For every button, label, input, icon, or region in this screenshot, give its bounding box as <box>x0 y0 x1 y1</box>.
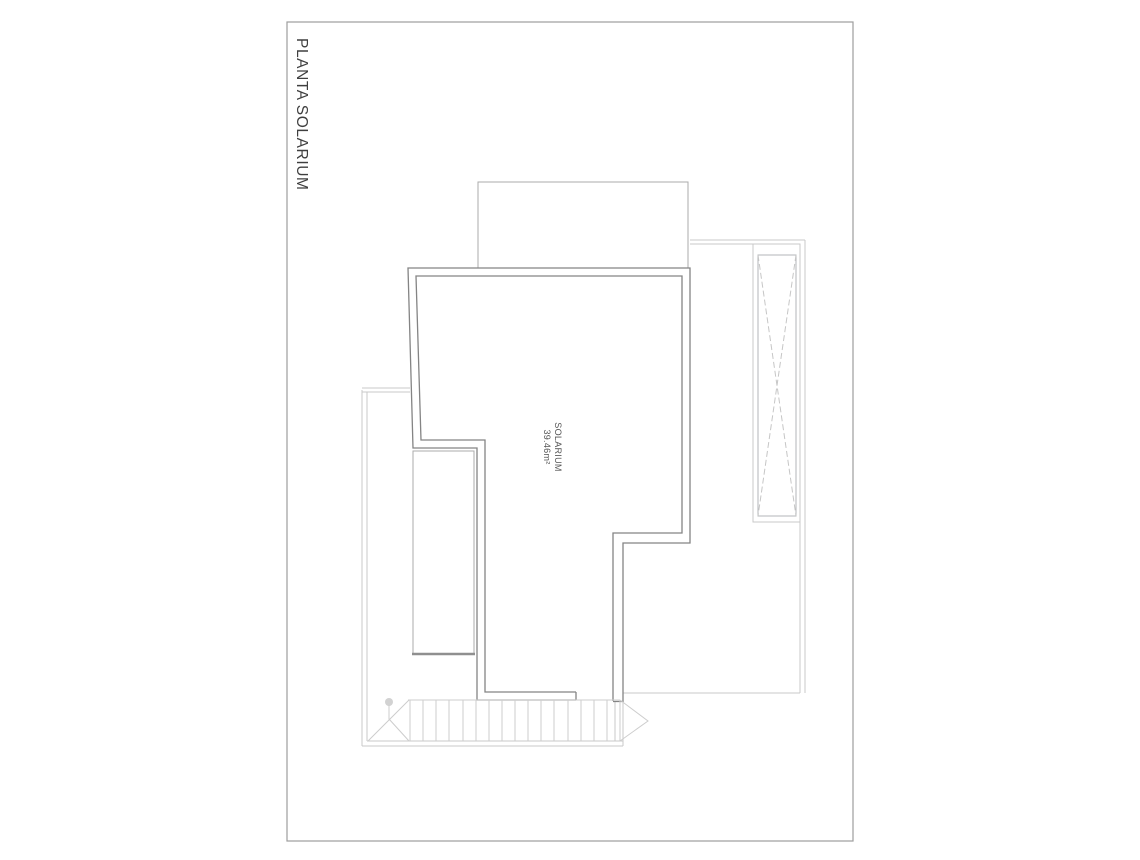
plan-title: PLANTA SOLARIUM <box>293 38 310 191</box>
room-area-label: 39.46m² <box>542 429 552 464</box>
room-label: SOLARIUM 39.46m² <box>542 422 563 471</box>
page-canvas: PLANTA SOLARIUM <box>0 0 1140 860</box>
stair-start-marker <box>385 698 393 706</box>
room-name-label: SOLARIUM <box>553 422 563 471</box>
sheet-border <box>287 22 853 841</box>
floor-plan-drawing: PLANTA SOLARIUM <box>0 0 1140 860</box>
